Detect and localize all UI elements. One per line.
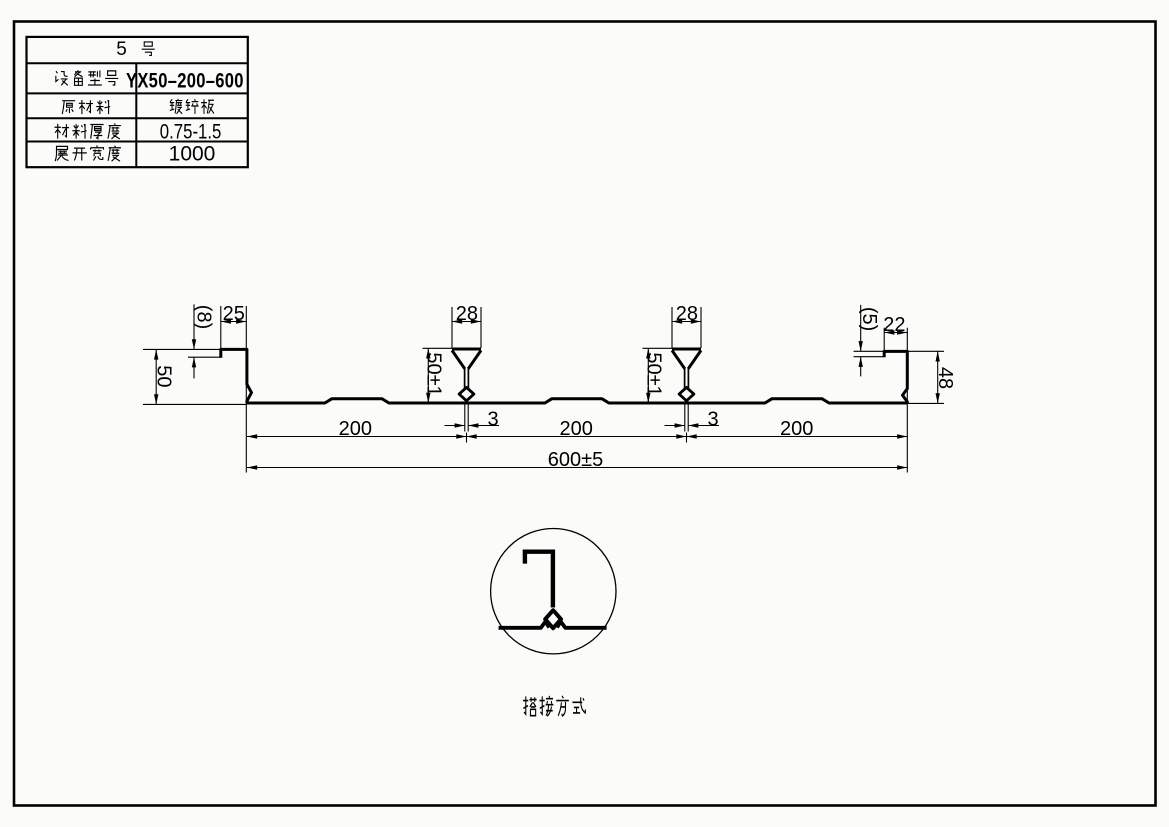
svg-text:28: 28: [456, 303, 478, 325]
svg-text:50: 50: [152, 365, 174, 387]
svg-text:(8): (8): [193, 305, 215, 329]
svg-text:0.75-1.5: 0.75-1.5: [160, 121, 222, 144]
svg-text:25: 25: [223, 303, 245, 325]
svg-text:600±5: 600±5: [548, 449, 603, 471]
svg-text:22: 22: [883, 314, 905, 336]
svg-text:3: 3: [487, 408, 498, 430]
svg-text:50±1: 50±1: [643, 352, 665, 396]
svg-text:(5): (5): [858, 307, 880, 331]
svg-text:200: 200: [780, 418, 813, 440]
svg-text:50±1: 50±1: [423, 352, 445, 396]
svg-text:200: 200: [339, 418, 372, 440]
svg-text:YX50–200–600: YX50–200–600: [126, 69, 244, 93]
svg-text:1000: 1000: [169, 142, 216, 165]
svg-text:28: 28: [676, 303, 698, 325]
svg-text:5: 5: [116, 39, 127, 60]
svg-text:48: 48: [934, 367, 956, 389]
svg-text:3: 3: [707, 408, 718, 430]
svg-text:200: 200: [560, 418, 593, 440]
